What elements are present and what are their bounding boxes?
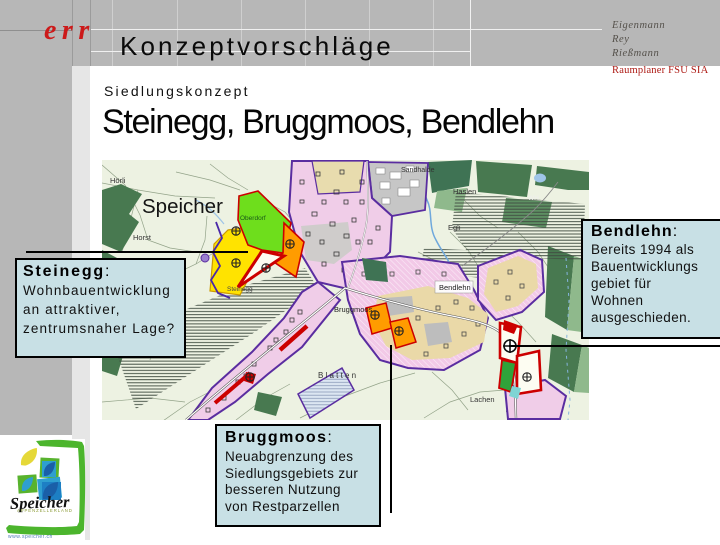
svg-text:Speicher: Speicher [142,195,223,218]
svg-text:Bruggmoos: Bruggmoos [334,305,373,314]
svg-text:Blatten: Blatten [318,371,358,380]
svg-text:Haslen: Haslen [453,187,476,196]
svg-text:Sandhalde: Sandhalde [401,167,435,174]
svg-text:Oberdorf: Oberdorf [240,215,266,222]
svg-text:Steinegg: Steinegg [227,286,253,293]
svg-text:Lachen: Lachen [470,395,495,404]
svg-text:Egli: Egli [448,223,461,232]
svg-text:Hörli: Hörli [110,176,126,185]
svg-text:Bendlehn: Bendlehn [439,283,471,292]
svg-text:WH: WH [528,195,539,202]
svg-text:Horst: Horst [133,233,152,242]
svg-text:APPENZELLERLAND: APPENZELLERLAND [17,508,73,513]
svg-text:www.speicher.ch: www.speicher.ch [8,534,53,540]
